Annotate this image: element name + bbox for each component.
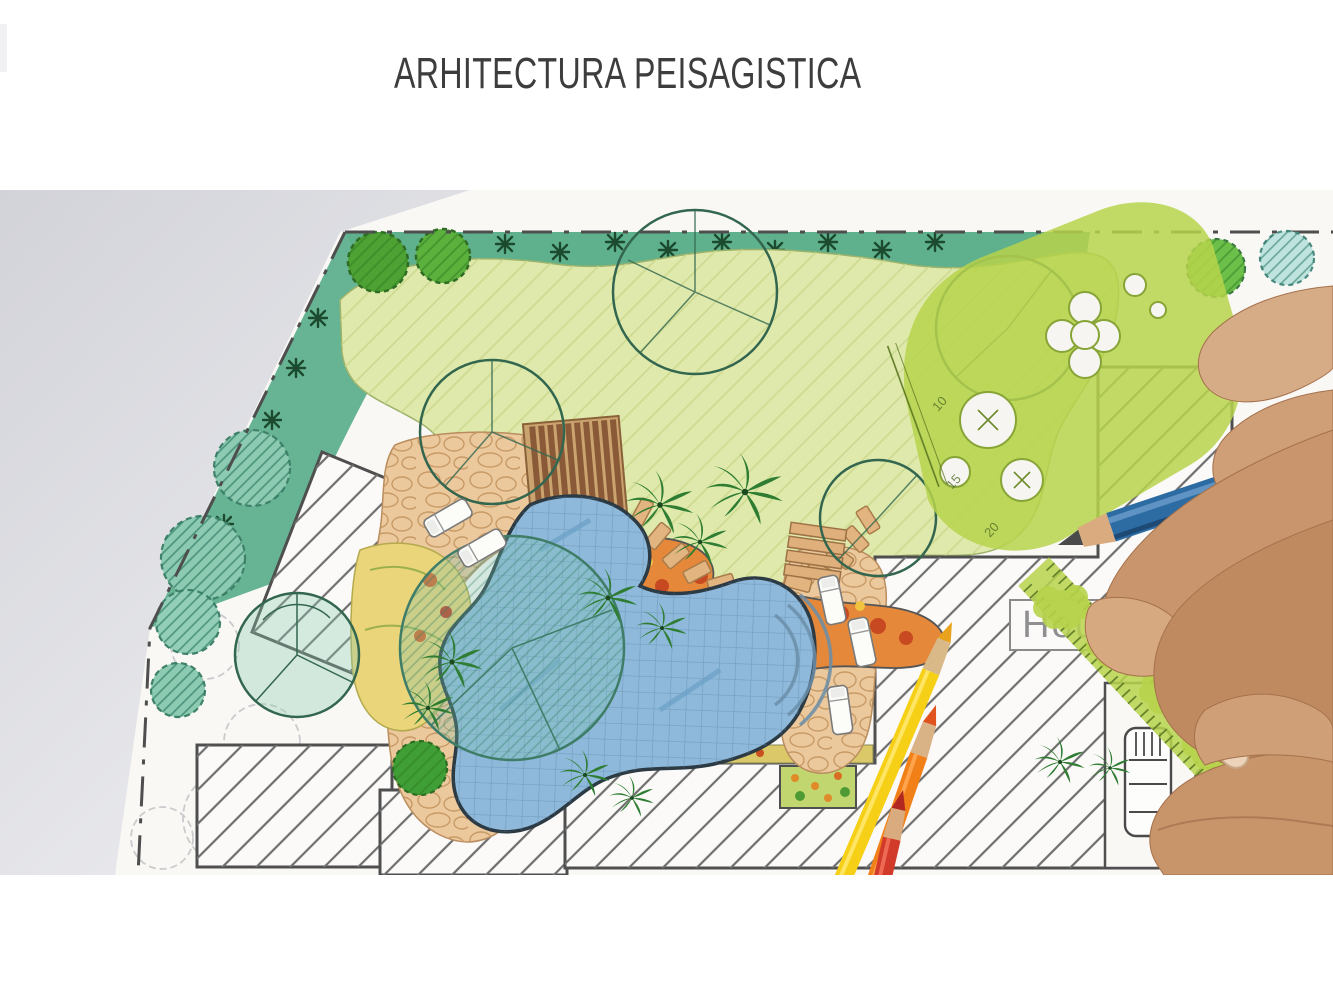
- page-edge-artifact: [0, 24, 7, 72]
- landscape-plan-photo: House: [0, 190, 1333, 875]
- tree-circle: [400, 536, 624, 760]
- outbuilding-b: [197, 745, 392, 867]
- garden-plan-drawing: House: [0, 190, 1333, 875]
- round-bush: [393, 741, 447, 795]
- tree-circle: [235, 593, 359, 717]
- slide-page: { "header": { "title": "ARHITECTURA PEIS…: [0, 0, 1333, 1000]
- page-title: ARHITECTURA PEISAGISTICA: [394, 52, 861, 96]
